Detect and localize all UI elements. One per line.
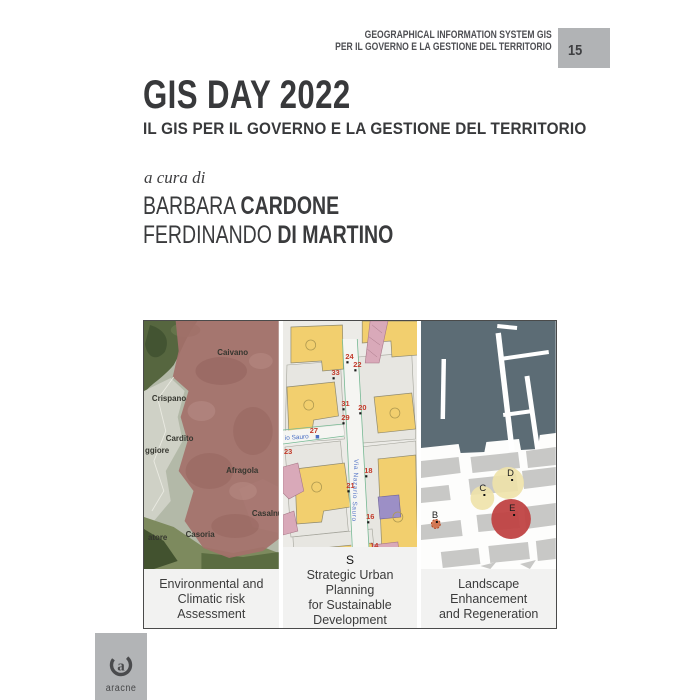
map-survey-dot — [332, 377, 334, 379]
map-survey-number: 23 — [284, 447, 292, 456]
caption-line: and Regeneration — [421, 607, 556, 622]
impact-point-label: E — [509, 503, 515, 514]
caption-line: Landscape Enhancement — [421, 577, 556, 607]
caption-line: Environmental and — [144, 577, 279, 592]
book-subtitle: IL GIS PER IL GOVERNO E LA GESTIONE DEL … — [143, 120, 586, 138]
panel-landscape-regeneration: BCDE Landscape Enhancement and Regenerat… — [421, 321, 556, 628]
map-survey-number: 29 — [341, 413, 349, 422]
map-place-label: Caivano — [217, 348, 248, 357]
series-title: GEOGRAPHICAL INFORMATION SYSTEM GIS PER … — [274, 30, 552, 53]
caption-line: Climatic risk Assessment — [144, 592, 279, 622]
panel-caption: Landscape Enhancement and Regeneration — [421, 569, 556, 628]
impact-point-label: C — [480, 483, 487, 494]
landscape-map-image: BCDE — [421, 321, 556, 569]
impact-point-dot — [511, 479, 513, 481]
book-cover: GEOGRAPHICAL INFORMATION SYSTEM GIS PER … — [0, 0, 700, 700]
series-number: 15 — [568, 42, 582, 59]
series-line2: PER IL GOVERNO E LA GESTIONE DEL TERRITO… — [335, 42, 552, 54]
book-title: GIS DAY 2022 — [143, 74, 527, 116]
author-name: BARBARA CARDONE — [143, 192, 393, 221]
author-last-name: CARDONE — [241, 192, 340, 220]
caption-line: Strategic Urban Planning — [283, 568, 418, 598]
panel-caption: Environmental and Climatic risk Assessme… — [144, 569, 279, 628]
panel-environmental-risk: CaivanoCrispanoCarditoggioreAfragolaCasa… — [144, 321, 279, 628]
map-place-label: ggiore — [145, 446, 170, 455]
map-place-label: Casoria — [186, 530, 216, 539]
map-place-label: Afragola — [226, 466, 259, 475]
svg-text:a: a — [117, 659, 125, 675]
title-block: GIS DAY 2022 IL GIS PER IL GOVERNO E LA … — [143, 74, 636, 138]
author-first-name: FERDINANDO — [143, 221, 272, 249]
map-survey-number: 33 — [331, 368, 339, 377]
impact-point-dot — [436, 521, 438, 523]
map-survey-number: 21 — [346, 481, 354, 490]
map-place-label: atore — [148, 533, 168, 542]
map-place-label: Crispano — [152, 394, 186, 403]
map-place-label: Cardito — [166, 434, 194, 443]
urban-planning-map-image: io Sauro Via Nazario Sauro 2422333129202… — [283, 321, 418, 547]
map-survey-dot — [347, 490, 349, 492]
cover-image-strip: CaivanoCrispanoCarditoggioreAfragolaCasa… — [143, 320, 557, 629]
aracne-logo-icon: a — [108, 652, 134, 682]
map-survey-dot — [367, 521, 369, 523]
map-survey-dot — [354, 369, 356, 371]
map-marker-s: S — [283, 555, 418, 566]
panel-urban-planning: io Sauro Via Nazario Sauro 2422333129202… — [283, 321, 418, 628]
map-survey-dot — [359, 412, 361, 414]
panel-caption: S Strategic Urban Planning for Sustainab… — [283, 547, 418, 628]
map-survey-dot — [365, 475, 367, 477]
map-survey-number: 18 — [364, 466, 372, 475]
impact-point-label: B — [432, 510, 438, 521]
editors-prefix: a cura di — [144, 168, 205, 188]
author-first-name: BARBARA — [143, 192, 235, 220]
impact-point-label: D — [507, 468, 514, 479]
impact-point-dot — [513, 514, 515, 516]
author-last-name: DI MARTINO — [277, 221, 393, 249]
series-number-badge: 15 — [558, 28, 610, 68]
authors-block: BARBARA CARDONE FERDINANDO DI MARTINO — [143, 192, 464, 250]
map-survey-dot — [346, 361, 348, 363]
caption-line: for Sustainable Development — [283, 598, 418, 628]
map-survey-dot — [342, 422, 344, 424]
impact-point-dot — [484, 494, 486, 496]
map-survey-dot — [342, 408, 344, 410]
map-survey-number: 27 — [309, 426, 317, 435]
map-survey-number: 31 — [341, 399, 349, 408]
map-survey-number: 20 — [358, 403, 366, 412]
publisher-name: aracne — [106, 683, 137, 694]
publisher-logo-box: a aracne — [95, 633, 147, 700]
author-name: FERDINANDO DI MARTINO — [143, 221, 393, 250]
map-survey-number: 22 — [353, 360, 361, 369]
map-place-label: Casalnu — [252, 509, 279, 518]
risk-assessment-map-image: CaivanoCrispanoCarditoggioreAfragolaCasa… — [144, 321, 279, 569]
map-survey-number: 16 — [366, 512, 374, 521]
